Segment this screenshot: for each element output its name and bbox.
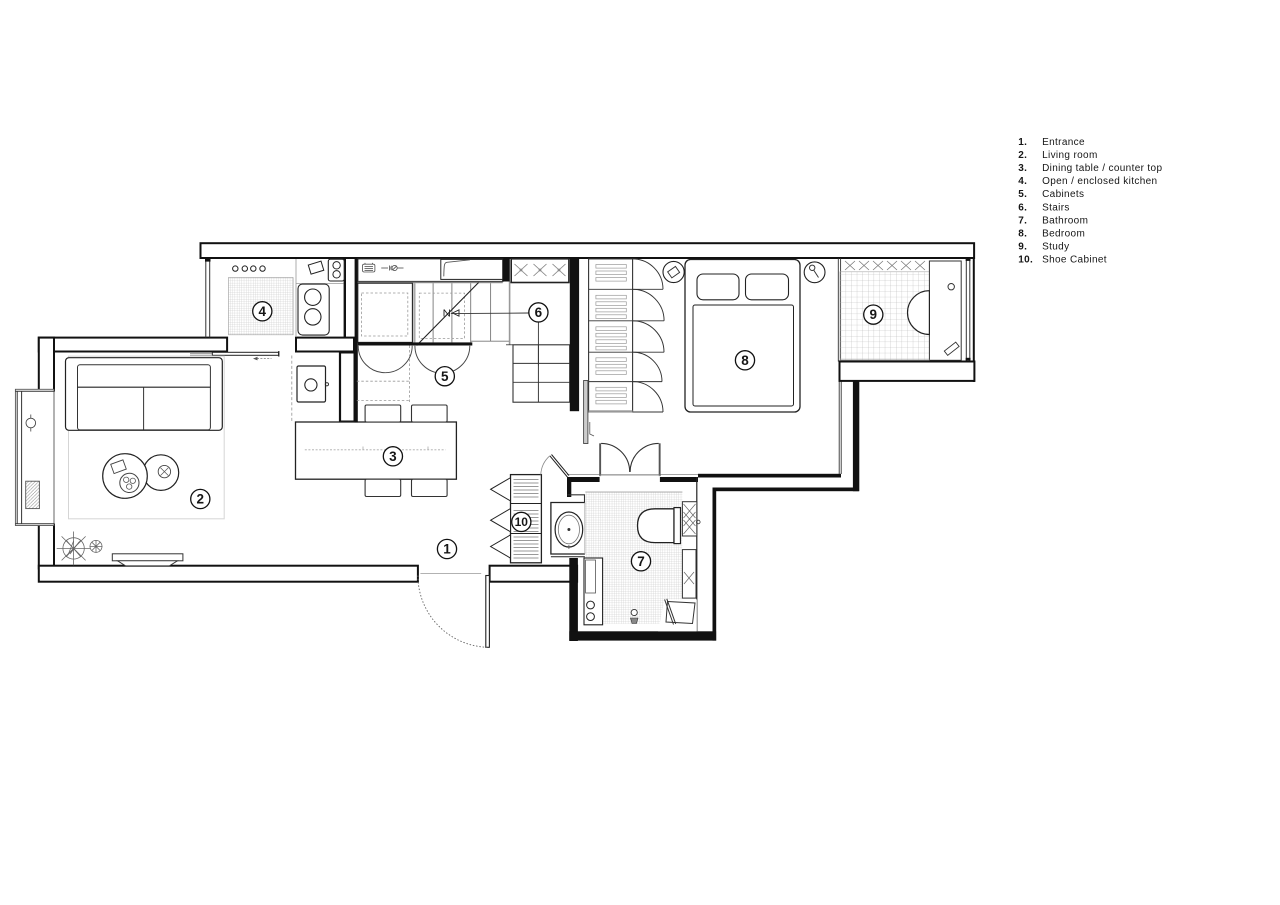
svg-text:Stairs: Stairs [1042,202,1070,213]
svg-text:Shoe Cabinet: Shoe Cabinet [1042,255,1107,266]
svg-text:Open / enclosed kitchen: Open / enclosed kitchen [1042,176,1157,187]
svg-text:9: 9 [870,307,878,322]
svg-text:5: 5 [441,369,449,384]
svg-text:Bathroom: Bathroom [1042,215,1088,226]
svg-text:6: 6 [535,305,543,320]
svg-text:8: 8 [741,353,749,368]
svg-text:Cabinets: Cabinets [1042,189,1084,200]
svg-text:3.: 3. [1018,163,1027,174]
svg-text:1: 1 [443,542,451,557]
svg-text:Living room: Living room [1042,150,1098,161]
svg-text:2.: 2. [1018,150,1027,161]
svg-text:2: 2 [197,492,205,507]
svg-text:9.: 9. [1018,242,1027,253]
svg-text:1.: 1. [1018,137,1027,148]
svg-text:Bedroom: Bedroom [1042,229,1085,240]
svg-text:4: 4 [259,304,267,319]
svg-text:Entrance: Entrance [1042,137,1085,148]
svg-text:Dining table / counter top: Dining table / counter top [1042,163,1162,174]
svg-text:3: 3 [389,449,397,464]
svg-text:10: 10 [515,515,529,529]
svg-text:7: 7 [637,554,645,569]
svg-text:7.: 7. [1018,215,1027,226]
svg-text:4.: 4. [1018,176,1027,187]
svg-text:10.: 10. [1018,255,1033,266]
svg-text:5.: 5. [1018,189,1027,200]
svg-text:Study: Study [1042,242,1069,253]
svg-text:8.: 8. [1018,229,1027,240]
svg-text:6.: 6. [1018,202,1027,213]
